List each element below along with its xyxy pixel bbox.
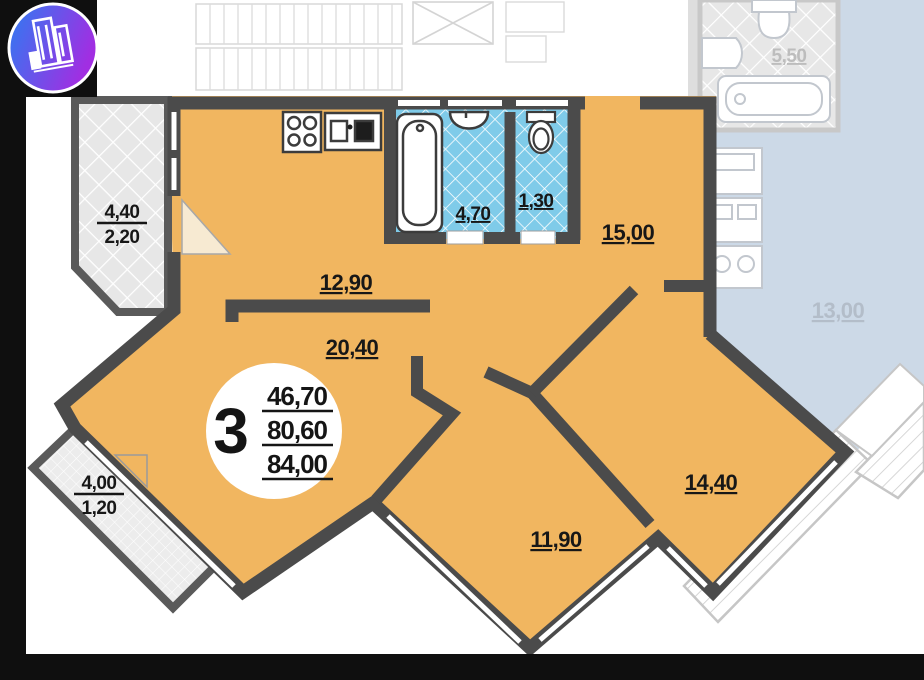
- svg-text:1,20: 1,20: [82, 498, 117, 519]
- neighbor-kitchen-area-label: 13,00: [812, 298, 865, 323]
- hall-kitchen-area-label: 12,90: [320, 270, 373, 295]
- floor-plan-svg: 13,00 5,50: [0, 0, 924, 680]
- faded-stairwell-background: [196, 0, 700, 100]
- wc-door: [521, 231, 555, 244]
- developer-building-logo: [9, 4, 97, 92]
- kitchen-sink-icon: [325, 113, 381, 150]
- living-room-area-label: 20,40: [326, 335, 379, 360]
- wc-area-label: 1,30: [519, 191, 554, 212]
- bedroom-right-area-label: 14,40: [685, 470, 738, 495]
- elevator-shaft-icon: [413, 2, 493, 44]
- bedroom-top-area-label: 15,00: [602, 220, 655, 245]
- bathtub-icon: [397, 114, 442, 232]
- toilet-icon: [527, 112, 555, 153]
- badge-total-area: 84,00: [267, 449, 328, 479]
- badge-apartment-area: 80,60: [267, 415, 328, 445]
- bathroom-door: [447, 231, 483, 244]
- svg-text:2,20: 2,20: [105, 227, 140, 248]
- stove-icon: [283, 112, 321, 152]
- neighbor-bathroom: [700, 0, 838, 130]
- badge-rooms-count: 3: [213, 395, 249, 467]
- svg-text:4,40: 4,40: [105, 202, 140, 223]
- bedroom-bottom-area-label: 11,90: [530, 527, 582, 552]
- floor-plan-image: 13,00 5,50: [0, 0, 924, 680]
- neighbor-bathroom-area-label: 5,50: [772, 46, 807, 67]
- apartment-badge: 3 46,70 80,60 84,00: [206, 363, 342, 499]
- neighbor-sink-icon: [702, 38, 742, 68]
- bathroom-area-label: 4,70: [456, 204, 491, 225]
- badge-living-area: 46,70: [267, 381, 328, 411]
- svg-text:4,00: 4,00: [82, 473, 117, 494]
